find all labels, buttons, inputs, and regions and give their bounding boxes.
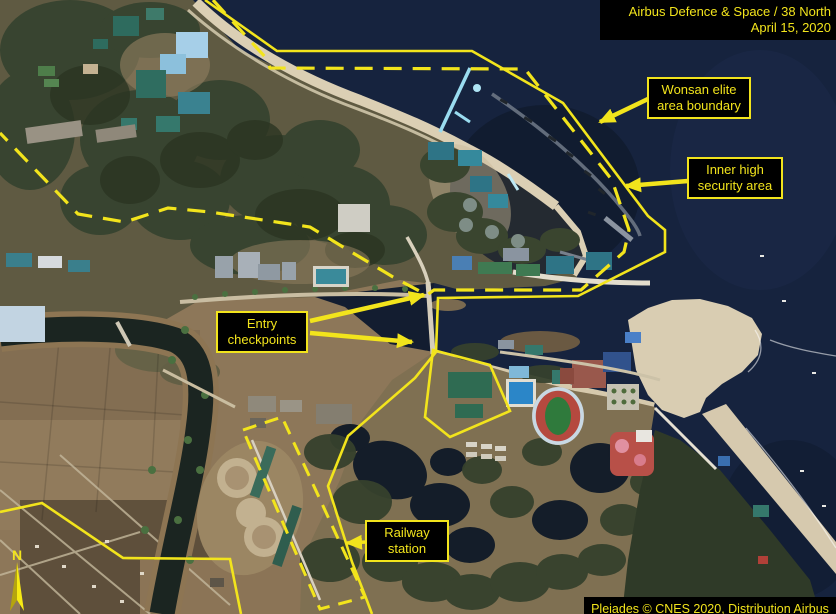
- annotated-satellite-image: Airbus Defence & Space / 38 North April …: [0, 0, 836, 614]
- railway-station-label: Railway station: [365, 520, 449, 562]
- north-label: N: [7, 547, 27, 563]
- wonsan-elite-area-label: Wonsan elite area boundary: [647, 77, 751, 119]
- credit-date: April 15, 2020: [600, 20, 831, 36]
- entry-checkpoints-label: Entry checkpoints: [216, 311, 308, 353]
- credit-source: Airbus Defence & Space / 38 North: [600, 4, 831, 20]
- bottom-image-credit: Pleiades © CNES 2020, Distribution Airbu…: [584, 597, 836, 614]
- inner-high-security-label: Inner high security area: [687, 157, 783, 199]
- railway-label-arrow: [347, 542, 366, 543]
- image-credit: Airbus Defence & Space / 38 North April …: [600, 0, 836, 40]
